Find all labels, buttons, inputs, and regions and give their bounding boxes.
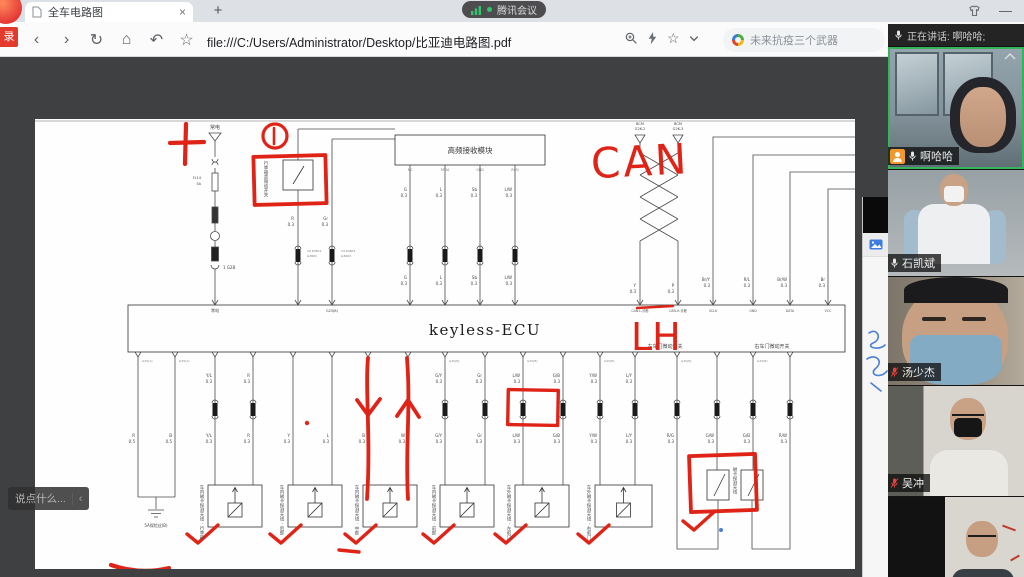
wire-label: 0.3: [244, 379, 251, 384]
participant-body: [952, 569, 1014, 577]
wire-label: 0.3: [359, 439, 366, 444]
pdf-page: 常电 BCM G2K-2 BCM G2K-3 FL14 5A 1 G2B 高频接…: [35, 119, 855, 569]
wire-label: NC: [408, 168, 413, 172]
search-query[interactable]: 未来抗疫三个武器: [750, 32, 838, 48]
wire-label: G/B: [553, 373, 560, 378]
chat-placeholder[interactable]: 说点什么...: [15, 491, 66, 506]
wire-label: G: [404, 187, 407, 192]
antenna-label: 车内磁卡探测天线-行李箱: [199, 485, 204, 540]
flash-icon[interactable]: [647, 32, 658, 45]
minimize-button[interactable]: —: [999, 3, 1012, 18]
antenna-label: 车内磁卡探测天线-后部: [279, 485, 284, 535]
circuit-diagram: 常电 BCM G2K-2 BCM G2K-3 FL14 5A 1 G2B 高频接…: [35, 119, 855, 569]
wire-label: GND: [749, 309, 757, 313]
mic-muted-icon: [890, 366, 899, 378]
wire-label: P: [672, 283, 675, 288]
wire-label: 0.5: [166, 439, 173, 444]
wire-label: Y/W: [588, 373, 597, 378]
wire-label: R: [247, 373, 250, 378]
wire-label: 0.3: [436, 379, 443, 384]
wire-label: 0.3: [781, 439, 788, 444]
wire-label: Y/W: [588, 433, 597, 438]
wire-label: 0.3: [668, 289, 675, 294]
name-tag: 石凯斌: [888, 254, 941, 272]
wire-label: Y: [287, 433, 291, 438]
wire-label: R/G: [667, 433, 674, 438]
face-mask: [944, 186, 964, 202]
speaking-banner: 正在讲话: 啊哈哈;: [888, 24, 1024, 46]
wire-label: 0.3: [436, 439, 443, 444]
wire-label: 0.3: [554, 439, 561, 444]
back-button[interactable]: ‹: [28, 31, 45, 49]
wire-label: Br: [821, 277, 826, 282]
wire-label: G25(B): [527, 359, 538, 363]
wire-label: R: [247, 433, 250, 438]
wire-label: RSSI: [511, 168, 518, 172]
antenna-label: 车外磁卡探测天线-左前门: [506, 485, 511, 540]
wire-label: 0.3: [206, 379, 213, 384]
chevron-down-icon[interactable]: [689, 35, 699, 42]
wire-label: G25(B): [681, 359, 692, 363]
wire-label: CAN-H-诊断: [669, 308, 688, 313]
wire-label: G25(B): [604, 359, 615, 363]
face-mask: [954, 418, 982, 437]
wire-label: G/B: [553, 433, 560, 438]
svg-text:高频接收模块: 高频接收模块: [448, 145, 493, 155]
meeting-status-pill[interactable]: 腾讯会议: [462, 1, 546, 18]
wire-label: G3603: [341, 254, 351, 258]
wire-label: L: [440, 275, 443, 280]
name-tag: 啊哈哈: [888, 147, 959, 165]
pdf-viewer: 常电 BCM G2K-2 BCM G2K-3 FL14 5A 1 G2B 高频接…: [0, 57, 888, 577]
svg-text:1 G2B: 1 G2B: [223, 265, 235, 270]
wire-label: L: [440, 187, 443, 192]
divider: [72, 493, 73, 505]
wire-label: 0.3: [476, 439, 483, 444]
participant-name: 汤少杰: [902, 364, 935, 380]
wire-label: G25(A): [142, 359, 153, 363]
wire-label: G/B: [743, 433, 750, 438]
forward-button[interactable]: ›: [58, 31, 75, 49]
record-badge: 录: [0, 27, 18, 47]
svg-text:常电: 常电: [210, 124, 220, 131]
participant-body: [930, 450, 1008, 496]
wire-label: G25(B): [449, 359, 460, 363]
svg-text:5A: 5A: [197, 182, 202, 186]
favorite-star-icon[interactable]: ☆: [667, 30, 680, 47]
svg-text:G2K-3: G2K-3: [673, 127, 684, 131]
new-tab-button[interactable]: +: [208, 2, 228, 20]
wire-label: GND: [476, 168, 484, 172]
meeting-pill-label: 腾讯会议: [497, 2, 537, 17]
bookmark-star-button[interactable]: ☆: [178, 30, 195, 50]
panel-dark-header: [863, 197, 888, 233]
wire-label: L: [327, 433, 330, 438]
wire-label: 0.3: [288, 222, 295, 227]
antenna-label: 车内磁卡探测天线-中部: [354, 485, 359, 535]
svg-text:常电: 常电: [211, 307, 219, 313]
name-tag: 吴冲: [888, 474, 930, 492]
wire-label: 0.3: [591, 439, 598, 444]
wire-label: 0.3: [626, 379, 633, 384]
wire-label: R/W: [779, 433, 787, 438]
wire-label: Gr: [323, 216, 328, 221]
wire-label: 0.3: [476, 379, 483, 384]
recent-button[interactable]: ↶: [148, 30, 165, 50]
wire-label: 0.3: [401, 281, 408, 286]
participant-name: 吴冲: [902, 475, 924, 491]
reload-button[interactable]: ↻: [88, 30, 105, 50]
tab-close-icon[interactable]: ×: [179, 5, 186, 19]
wire-label: 0.3: [708, 439, 715, 444]
svg-text:5A保险丝(B): 5A保险丝(B): [144, 522, 168, 528]
wire-label: Sb: [472, 187, 478, 192]
wire-label: 0.3: [630, 289, 637, 294]
name-tag: 汤少杰: [888, 363, 941, 381]
chat-collapse-icon[interactable]: ‹: [79, 493, 83, 505]
wire-label: Y/L: [205, 373, 213, 378]
wire-label: B: [362, 433, 365, 438]
home-button[interactable]: ⌂: [118, 31, 135, 49]
meeting-sidebar: 正在讲话: 啊哈哈; 啊哈哈 石凯斌: [888, 24, 1024, 577]
wire-label: 0.3: [436, 193, 443, 198]
wire-label: G: [404, 275, 407, 280]
wire-label: 0.3: [514, 379, 521, 384]
wire-label: G/W: [706, 433, 714, 438]
svg-text:CAN: CAN: [590, 134, 691, 188]
participant-hair: [904, 277, 1008, 303]
image-icon[interactable]: [869, 239, 883, 250]
wire-label: G/Y: [435, 433, 442, 438]
wire-label: Br/W: [777, 277, 787, 282]
mic-icon: [894, 29, 903, 41]
wire-label: L/Y: [626, 433, 633, 438]
search-engine-logo: [732, 34, 744, 46]
chat-input-bubble[interactable]: 说点什么... ‹: [8, 487, 89, 510]
svg-text:BCM: BCM: [636, 122, 644, 126]
wire-label: 0.3: [401, 193, 408, 198]
participant-face: [960, 87, 1006, 147]
wire-label: SCLK: [709, 309, 718, 313]
address-bar-url[interactable]: file:///C:/Users/Administrator/Desktop/比…: [207, 32, 511, 51]
antenna-label: 磁卡探测天线: [732, 467, 737, 494]
wire-label: 0.3: [704, 283, 711, 288]
wire-label: Sb: [472, 275, 478, 280]
wire-label: 0.3: [781, 283, 788, 288]
wire-label: G25(B): [757, 359, 768, 363]
wire-label: 0.3: [399, 439, 406, 444]
antenna-label: 车内磁卡探测天线-前部: [431, 485, 436, 535]
tab-title: 全车电路图: [48, 4, 173, 20]
wire-label: 10 K3501: [307, 249, 321, 253]
wire-label: 0.3: [323, 439, 330, 444]
wire-label: 0.3: [506, 281, 513, 286]
speaking-label: 正在讲话: 啊哈哈;: [907, 28, 985, 43]
wire-label: 0.5: [129, 439, 136, 444]
meeting-live-dot: [487, 7, 492, 12]
participant-name: 石凯斌: [902, 255, 935, 271]
wire-label: W: [401, 433, 405, 438]
collapse-chevron-icon[interactable]: [1004, 53, 1016, 60]
blue-scribble: [863, 325, 889, 395]
wire-label: 0.3: [322, 222, 329, 227]
glasses: [968, 535, 996, 541]
wire-label: Y: [633, 283, 637, 288]
wire-label: 0.3: [471, 193, 478, 198]
eyebrow: [922, 317, 946, 321]
search-box[interactable]: 未来抗疫三个武器: [723, 28, 885, 52]
wire-label: 0.3: [471, 281, 478, 286]
wire-label: R: [132, 433, 135, 438]
wire-label: Y/L: [205, 433, 213, 438]
wire-label: 0.3: [744, 439, 751, 444]
cabinet: [895, 52, 939, 116]
participant-name: 啊哈哈: [920, 148, 953, 164]
floating-tool-panel[interactable]: ✂: [862, 197, 888, 577]
svg-text:FL14: FL14: [193, 176, 201, 180]
wire-label: 14 K3603: [341, 249, 355, 253]
video-tile[interactable]: 石凯斌: [888, 170, 1024, 276]
wire-label: R/L: [744, 277, 751, 282]
wire-label: Gr: [477, 373, 482, 378]
wire-label: G/Y: [435, 373, 442, 378]
wire-label: Gr: [477, 433, 482, 438]
wire-label: 0.3: [591, 379, 598, 384]
wire-label: 0.3: [206, 439, 213, 444]
wire-label: 0.3: [436, 281, 443, 286]
wire-label: VCC: [825, 309, 832, 313]
wire-label: L/W: [512, 373, 520, 378]
wire-label: G25(A): [179, 359, 190, 363]
antenna-label: 车外磁卡探测天线-右前门: [586, 485, 591, 540]
svg-text:LH: LH: [631, 315, 681, 359]
wire-label: 0.3: [819, 283, 826, 288]
wire-label: 0.3: [514, 439, 521, 444]
trunk-switch-label: 行李箱盖微动开关: [263, 161, 268, 197]
svg-text:G2K-2: G2K-2: [635, 127, 646, 131]
svg-text:G25(B): G25(B): [326, 309, 339, 313]
wire-label: RFDA: [441, 168, 450, 172]
wire-label: DATA: [786, 309, 795, 313]
wire-label: 0.3: [506, 193, 513, 198]
document-icon: [32, 6, 42, 18]
video-tile[interactable]: 汤少杰: [888, 277, 1024, 385]
video-tile[interactable]: 吴冲: [888, 386, 1024, 496]
screen: 全车电路图 × + — ‹ › ↻ ⌂ ↶ ☆ file:///C:/Users…: [0, 0, 1024, 577]
host-icon: [890, 149, 905, 164]
tab-circuit-diagram[interactable]: 全车电路图 ×: [25, 2, 193, 22]
video-tile[interactable]: [888, 497, 1024, 577]
signal-bars-icon: [471, 5, 482, 15]
wire-label: Br/Y: [702, 277, 711, 282]
mic-icon: [908, 150, 917, 162]
wire-label: G3601: [307, 254, 317, 258]
wire-label: B: [169, 433, 172, 438]
svg-text:keyless-ECU: keyless-ECU: [429, 321, 541, 339]
zoom-icon[interactable]: [625, 32, 638, 45]
wire-label: 0.3: [244, 439, 251, 444]
wire-label: L/W: [512, 433, 520, 438]
wire-label: 0.3: [626, 439, 633, 444]
wire-label: L/W: [504, 275, 512, 280]
svg-text:右车门微动开关: 右车门微动开关: [754, 343, 789, 350]
mic-muted-icon: [890, 477, 899, 489]
mic-icon: [890, 257, 899, 269]
svg-text:BCM: BCM: [674, 122, 682, 126]
wire-label: R: [291, 216, 294, 221]
wire-label: 0.3: [284, 439, 291, 444]
wire-label: L/Y: [626, 373, 633, 378]
wire-label: 0.3: [668, 439, 675, 444]
wire-label: 0.3: [554, 379, 561, 384]
wire-label: L/W: [504, 187, 512, 192]
video-tile[interactable]: 啊哈哈: [888, 47, 1024, 169]
theme-shirt-icon[interactable]: [966, 3, 983, 18]
eyebrow: [962, 317, 986, 321]
wire-label: 0.3: [744, 283, 751, 288]
